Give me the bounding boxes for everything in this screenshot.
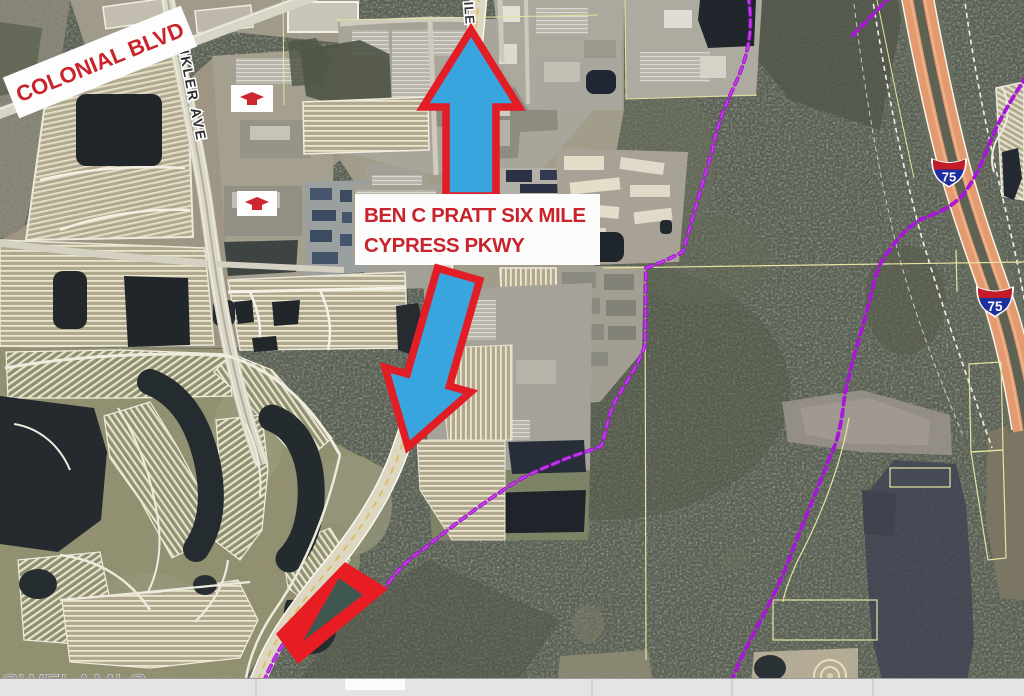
svg-text:CYPRESS PKWY: CYPRESS PKWY	[364, 234, 525, 257]
svg-text:75: 75	[987, 299, 1003, 314]
svg-text:75: 75	[942, 170, 956, 185]
svg-text:BEN C PRATT SIX MILE: BEN C PRATT SIX MILE	[364, 204, 586, 227]
svg-text:ILE: ILE	[461, 1, 478, 25]
